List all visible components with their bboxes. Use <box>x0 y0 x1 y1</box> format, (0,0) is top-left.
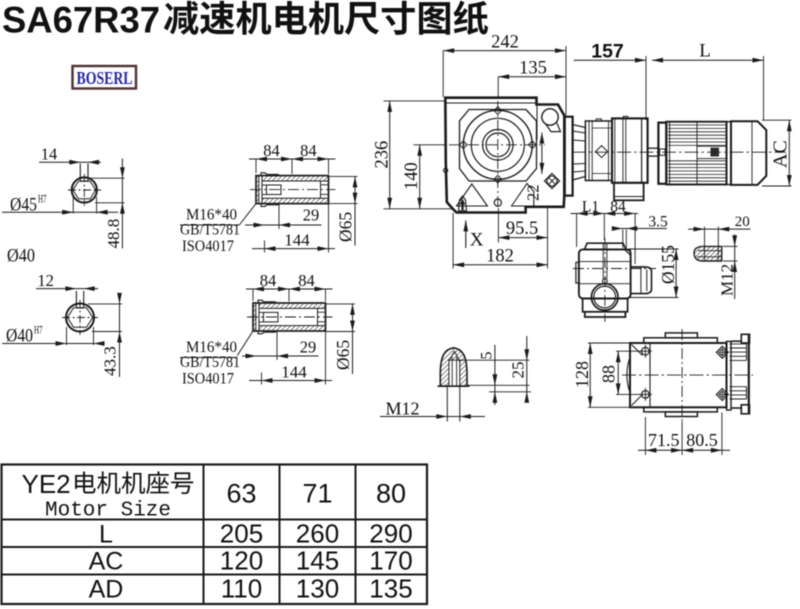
svg-text:95.5: 95.5 <box>506 219 538 239</box>
svg-text:140: 140 <box>402 162 422 190</box>
svg-text:X: X <box>470 230 484 251</box>
svg-text:260: 260 <box>296 519 339 549</box>
svg-text:GB/T5781: GB/T5781 <box>180 354 240 371</box>
svg-text:80.5: 80.5 <box>686 430 718 450</box>
svg-text:135: 135 <box>519 59 547 79</box>
svg-text:110: 110 <box>221 574 262 604</box>
svg-text:20: 20 <box>735 214 750 230</box>
svg-text:120: 120 <box>220 546 263 576</box>
svg-text:144: 144 <box>281 363 307 382</box>
svg-text:63: 63 <box>226 479 256 509</box>
svg-text:144: 144 <box>284 231 310 250</box>
svg-text:242: 242 <box>491 32 519 52</box>
svg-text:84: 84 <box>300 141 317 160</box>
svg-text:5: 5 <box>479 352 496 360</box>
svg-text:22: 22 <box>524 185 543 202</box>
svg-text:Ø65: Ø65 <box>336 212 356 242</box>
svg-text:71: 71 <box>302 479 332 509</box>
svg-text:H7: H7 <box>38 194 47 206</box>
svg-text:Ø65: Ø65 <box>333 340 353 370</box>
svg-text:BOSERL: BOSERL <box>77 68 133 88</box>
svg-text:48.8: 48.8 <box>104 219 123 249</box>
svg-text:29: 29 <box>303 205 320 224</box>
svg-text:12: 12 <box>37 271 54 290</box>
svg-text:88: 88 <box>599 365 619 383</box>
svg-text:AC: AC <box>770 140 792 168</box>
svg-text:Ø155: Ø155 <box>658 245 678 284</box>
svg-text:M12: M12 <box>717 264 736 296</box>
svg-text:14: 14 <box>41 145 58 164</box>
svg-text:29: 29 <box>300 338 317 357</box>
svg-text:170: 170 <box>369 546 412 576</box>
svg-text:290: 290 <box>369 519 412 549</box>
svg-text:205: 205 <box>220 519 263 549</box>
svg-text:L: L <box>99 521 113 549</box>
svg-text:3.5: 3.5 <box>648 213 668 230</box>
svg-text:GB/T5781: GB/T5781 <box>180 222 240 239</box>
svg-text:236: 236 <box>372 141 392 169</box>
svg-text:145: 145 <box>296 546 339 576</box>
svg-text:AD: AD <box>89 576 124 604</box>
svg-text:25: 25 <box>509 362 528 379</box>
svg-text:L1: L1 <box>582 199 599 216</box>
svg-text:ISO4017: ISO4017 <box>182 371 234 388</box>
svg-text:182: 182 <box>486 246 514 266</box>
svg-text:YE2: YE2 <box>22 469 71 499</box>
svg-text:80: 80 <box>376 479 406 509</box>
svg-text:157: 157 <box>591 41 624 63</box>
svg-text:84: 84 <box>260 271 277 290</box>
svg-text:ISO4017: ISO4017 <box>182 238 234 255</box>
svg-text:71.5: 71.5 <box>648 430 680 450</box>
svg-text:Motor Size: Motor Size <box>45 500 171 523</box>
svg-text:AC: AC <box>89 548 124 576</box>
svg-text:43.3: 43.3 <box>101 346 120 376</box>
svg-text:130: 130 <box>296 574 339 604</box>
svg-text:135: 135 <box>369 574 412 604</box>
svg-text:84: 84 <box>610 199 626 216</box>
svg-text:H7: H7 <box>34 325 43 337</box>
svg-text:84: 84 <box>298 271 315 290</box>
svg-text:M12: M12 <box>386 399 420 419</box>
svg-text:SA67R37: SA67R37 <box>2 0 160 41</box>
svg-text:Ø40: Ø40 <box>7 246 35 267</box>
svg-text:84: 84 <box>263 141 280 160</box>
svg-text:L: L <box>699 41 711 62</box>
svg-text:128: 128 <box>572 361 592 388</box>
